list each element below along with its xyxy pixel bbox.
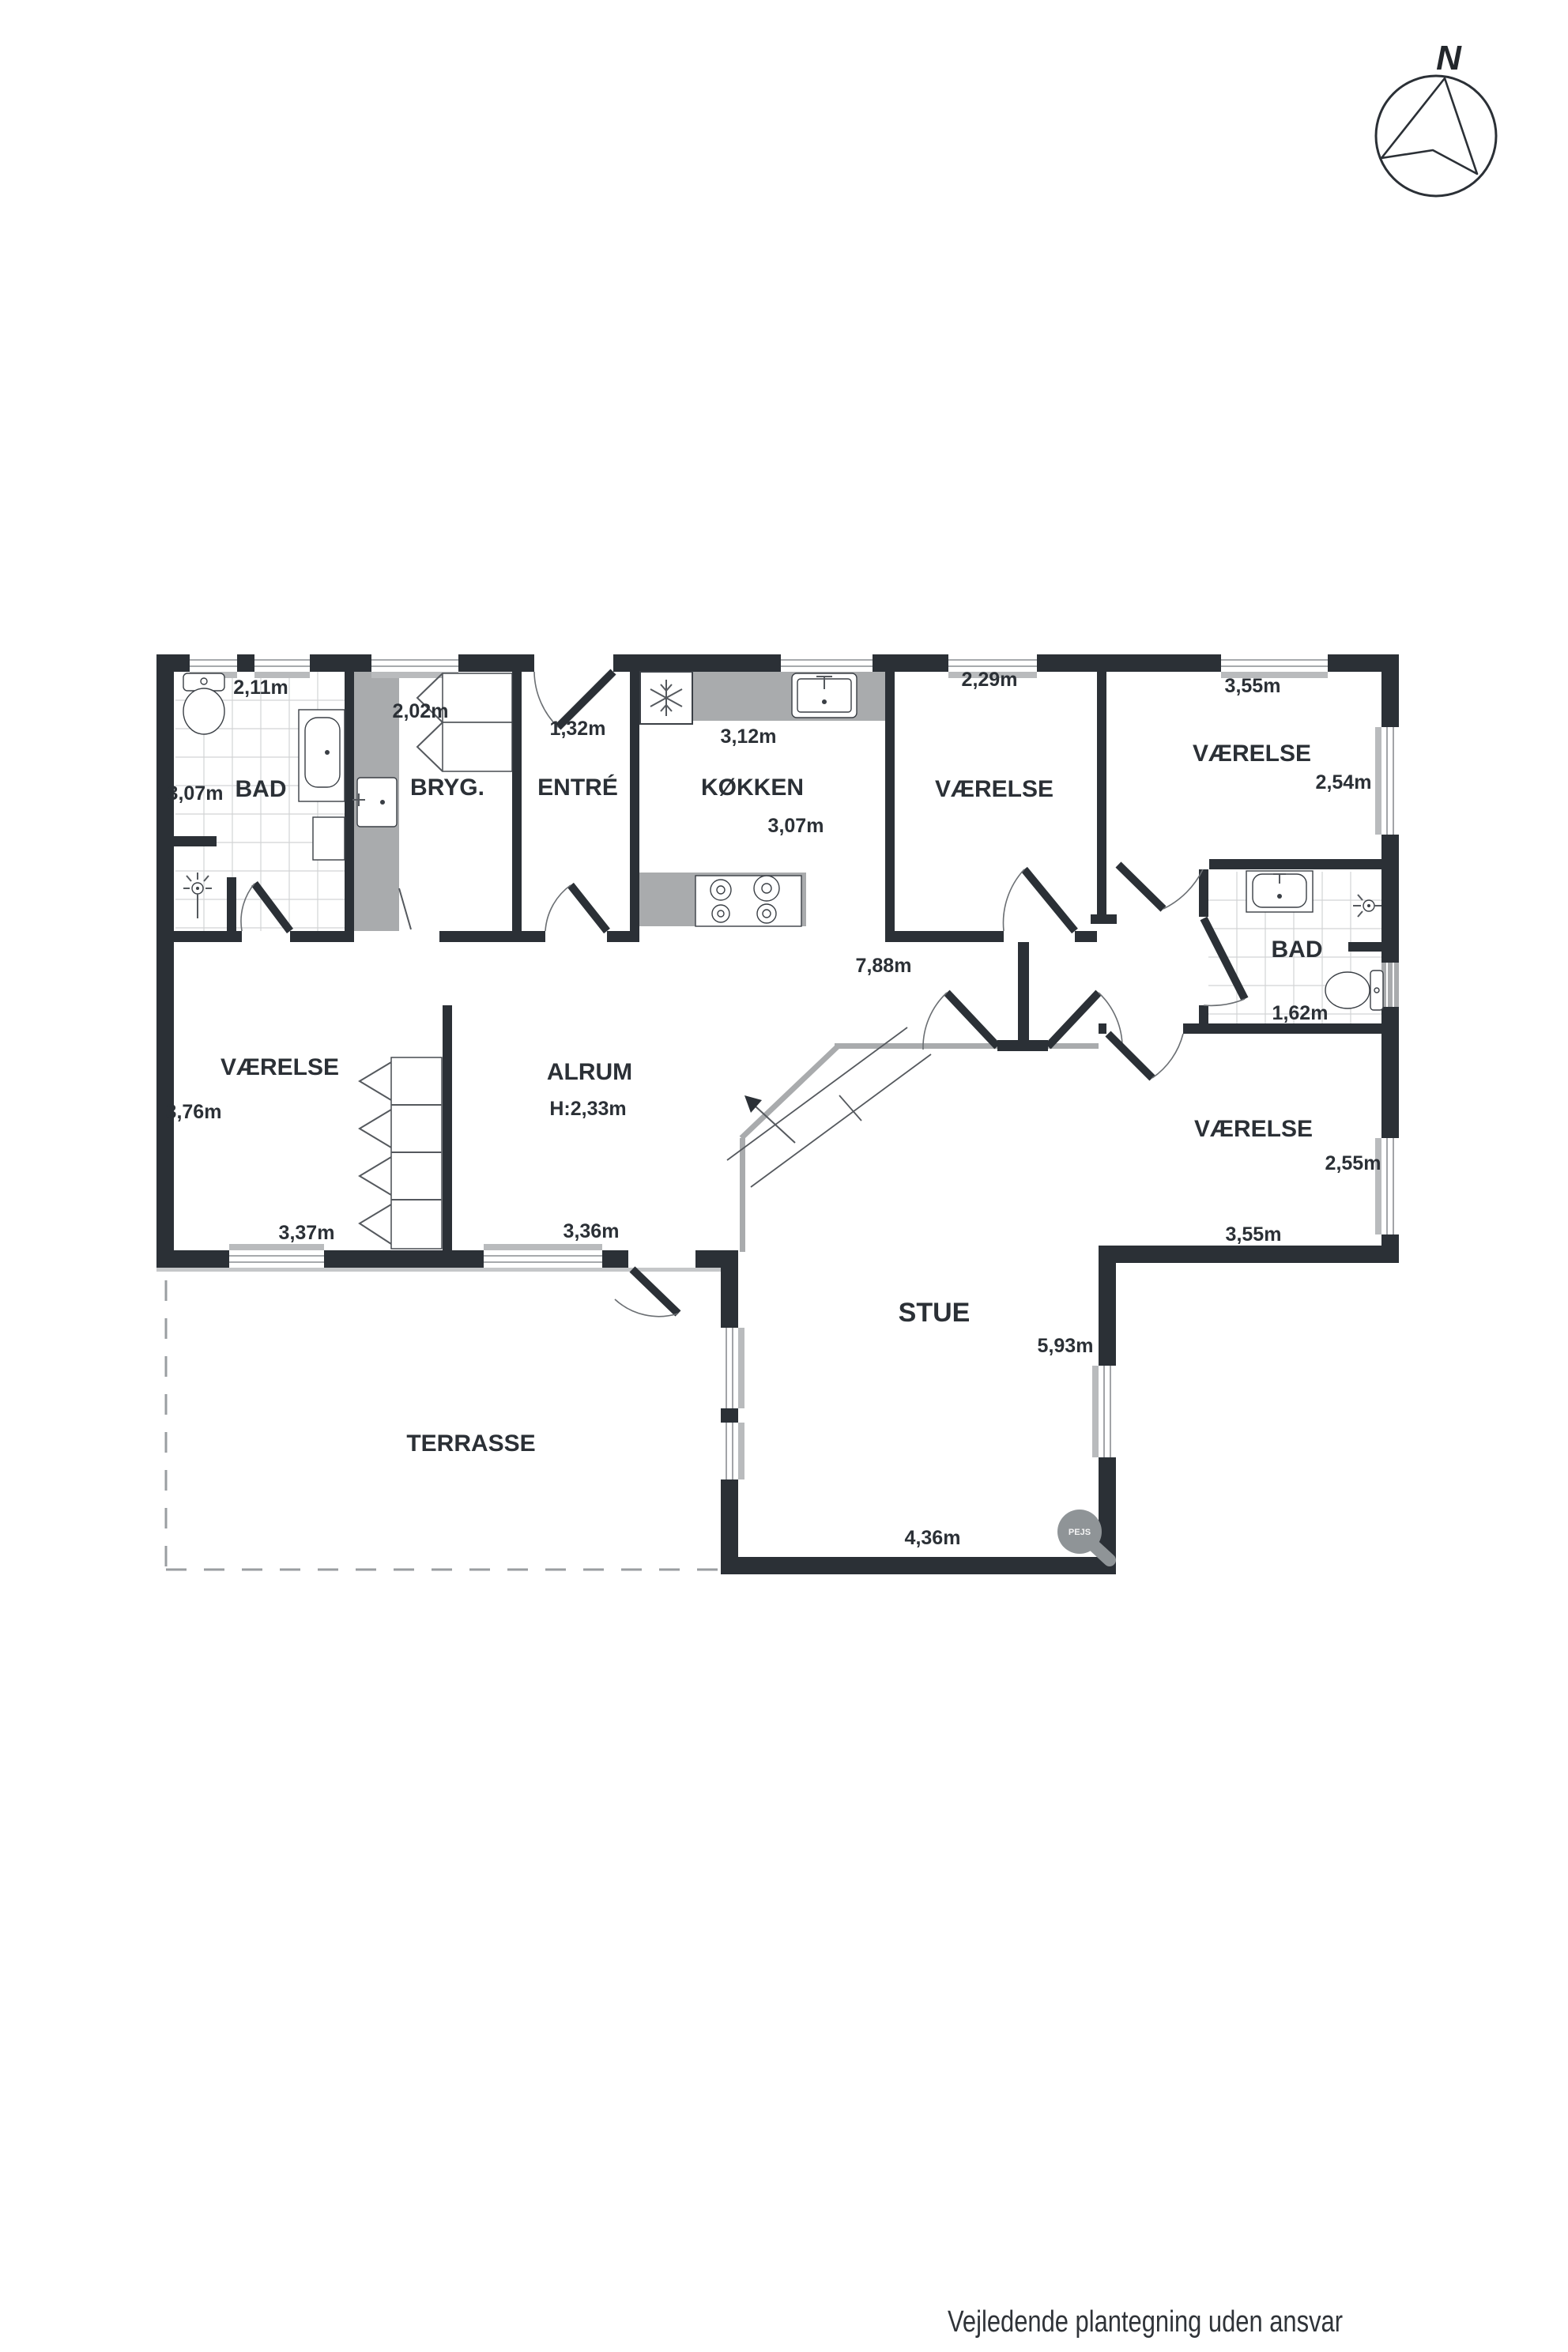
compass-north-label: N <box>1436 39 1462 77</box>
dim-vaerelse-w-width: 3,37m <box>279 1222 335 1244</box>
toilet-icon <box>1325 971 1383 1010</box>
stove-burners-icon <box>695 876 801 926</box>
floorplan-page: N <box>0 0 1568 2352</box>
door-icon <box>241 884 290 931</box>
window-icon <box>484 1244 602 1268</box>
door-icon <box>1108 1034 1183 1078</box>
dim-bad-nw-width: 2,11m <box>233 677 288 699</box>
dim-kokken-width: 3,12m <box>721 726 777 748</box>
dim-stue-depth: 5,93m <box>1038 1335 1094 1357</box>
dim-vaerelse-n-width: 2,29m <box>962 669 1018 691</box>
dim-stue-width: 4,36m <box>905 1527 961 1549</box>
fireplace-label: PEJS <box>1069 1528 1091 1537</box>
dim-gang-length: 7,88m <box>856 955 912 977</box>
wardrobe-icon <box>360 1057 442 1249</box>
dim-vaerelse-w-depth: 3,76m <box>166 1101 222 1123</box>
open-boundary-gray <box>740 1043 1099 1252</box>
dim-vaerelse-se-width: 3,55m <box>1226 1223 1282 1246</box>
room-label-vaerelse-ne: VÆRELSE <box>1193 741 1311 767</box>
window-icon <box>229 1244 324 1268</box>
room-label-alrum: ALRUM <box>547 1059 632 1085</box>
door-icon <box>399 888 411 929</box>
door-icon <box>615 1269 678 1317</box>
dim-bad-e-width: 1,62m <box>1272 1002 1329 1024</box>
window-icon <box>721 1423 744 1479</box>
bathroom-sink-icon <box>299 710 345 860</box>
disclaimer-text: Vejledende plantegning uden ansvar <box>948 2305 1343 2339</box>
dim-entre-door: 1,32m <box>550 718 606 740</box>
shower-head-icon <box>183 873 212 918</box>
fridge-snowflake-icon <box>640 672 692 724</box>
toilet-icon <box>183 673 224 734</box>
door-icon <box>1003 869 1075 931</box>
compass-north-icon: N <box>1376 39 1496 196</box>
room-label-stue: STUE <box>899 1298 971 1328</box>
room-label-bad-nw: BAD <box>236 776 287 802</box>
window-icon <box>781 654 873 672</box>
floorplan-drawing: N <box>0 0 1568 2352</box>
door-icon <box>1204 918 1245 1005</box>
door-icon <box>1118 865 1203 909</box>
dim-vaerelse-ne-depth: 2,54m <box>1316 771 1372 793</box>
window-icon <box>254 654 310 678</box>
window-icon <box>721 1328 744 1408</box>
door-icon <box>545 885 607 931</box>
kitchen-sink-icon <box>792 673 857 718</box>
room-label-entre: ENTRÉ <box>537 774 618 801</box>
room-label-vaerelse-n: VÆRELSE <box>935 776 1053 802</box>
shower-head-icon <box>1353 895 1381 917</box>
room-label-vaerelse-w: VÆRELSE <box>220 1054 339 1080</box>
room-label-bad-e: BAD <box>1272 937 1323 963</box>
room-label-terrasse: TERRASSE <box>406 1430 535 1457</box>
dim-alrum-width: 3,36m <box>563 1220 620 1242</box>
washer-dryer-icon <box>417 673 512 771</box>
dim-vaerelse-ne-width: 3,55m <box>1225 675 1281 697</box>
door-icon <box>923 993 997 1050</box>
window-icon <box>1381 963 1399 1007</box>
window-icon <box>1375 727 1399 835</box>
room-label-kokken: KØKKEN <box>701 775 804 801</box>
utility-sink-icon <box>352 778 397 827</box>
window-icon <box>1092 1366 1116 1457</box>
dim-vaerelse-se-depth: 2,55m <box>1325 1152 1381 1174</box>
room-label-vaerelse-se: VÆRELSE <box>1194 1116 1313 1142</box>
terrasse-outline <box>166 1280 718 1571</box>
dim-bad-nw-depth: 3,07m <box>168 782 224 805</box>
dim-kokken-depth: 3,07m <box>768 815 824 837</box>
bathroom-sink-icon <box>1246 871 1313 912</box>
dim-alrum-height: H:2,33m <box>549 1098 626 1120</box>
dim-bryggers-width: 2,02m <box>393 700 449 722</box>
room-label-bryggers: BRYG. <box>410 775 484 801</box>
